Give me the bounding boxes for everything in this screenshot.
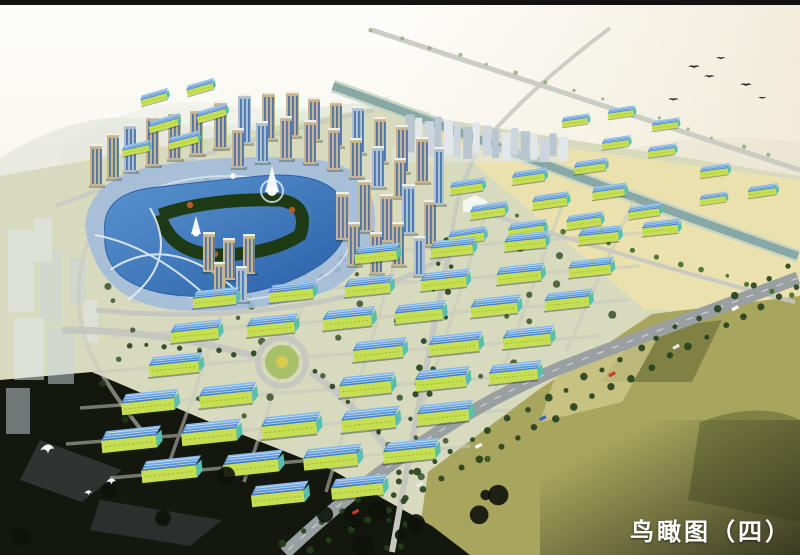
tree <box>698 267 704 273</box>
tower-glass <box>234 133 236 166</box>
tower-cap <box>348 222 360 224</box>
tower-glass <box>209 237 211 270</box>
island-tree <box>187 202 193 208</box>
tree <box>526 292 532 298</box>
tower-glass <box>253 239 255 272</box>
tower-glass <box>364 185 366 230</box>
distant-building <box>434 117 441 152</box>
tree <box>543 80 547 84</box>
tree-blob <box>217 467 235 485</box>
tree <box>769 289 774 294</box>
tower-glass <box>117 138 119 177</box>
tower-glass <box>296 96 298 135</box>
tower-cap <box>232 128 244 130</box>
tower-glass <box>346 197 348 238</box>
tower-cap <box>236 266 247 268</box>
tree-blob <box>368 501 387 520</box>
tower-glass <box>426 142 428 181</box>
tower-cap <box>396 125 408 127</box>
tower-cap <box>146 116 159 118</box>
tower-glass <box>100 149 102 184</box>
tower-glass <box>340 106 342 145</box>
tree <box>776 293 782 299</box>
tower-glass <box>382 151 384 186</box>
distant-building <box>482 126 491 156</box>
tree <box>346 400 350 404</box>
tree <box>757 303 764 310</box>
tree-blob <box>407 514 425 532</box>
island-tree <box>162 229 168 235</box>
tree <box>599 367 604 372</box>
plaza-monument <box>230 173 236 179</box>
island-tree <box>297 225 303 231</box>
tree <box>515 435 520 440</box>
tower-glass <box>382 199 384 240</box>
tower-cap <box>392 222 404 224</box>
tree-blob <box>470 505 489 524</box>
tower-glass <box>404 189 406 232</box>
faded-building <box>8 230 34 312</box>
tree <box>785 263 790 268</box>
island-tree <box>279 241 285 247</box>
tower-glass <box>242 133 244 166</box>
tower-glass <box>426 205 428 244</box>
tree <box>526 318 532 324</box>
tree <box>408 417 412 421</box>
tree-blob <box>101 482 117 498</box>
tree <box>438 475 444 481</box>
tree <box>459 464 465 470</box>
tower-glass <box>360 143 362 176</box>
tower-cap <box>262 92 275 94</box>
tower-glass <box>384 122 386 161</box>
faded-building <box>6 388 30 434</box>
tower-glass <box>258 126 260 161</box>
tower-cap <box>308 97 320 99</box>
tree <box>589 393 595 399</box>
tree <box>696 316 702 322</box>
faded-building <box>34 218 52 262</box>
tower-glass <box>416 241 418 274</box>
roundabout <box>258 338 306 386</box>
tree <box>710 136 713 139</box>
tower-glass <box>286 121 288 158</box>
tower-glass <box>360 185 362 230</box>
tree <box>458 53 462 57</box>
tree <box>476 456 484 464</box>
tower-glass <box>440 152 442 203</box>
tree <box>402 495 408 501</box>
tree <box>484 456 490 462</box>
tower-glass <box>422 142 424 181</box>
tower-glass <box>374 151 376 186</box>
tree <box>443 438 449 444</box>
tower-glass <box>406 130 408 171</box>
fountain-base <box>267 186 277 196</box>
tower-glass <box>266 126 268 161</box>
tree <box>177 346 182 351</box>
tower-cap <box>374 117 386 119</box>
tree <box>723 322 729 328</box>
distant-building <box>473 122 480 153</box>
island-tree <box>242 195 248 201</box>
tree <box>391 492 397 498</box>
tree <box>364 516 371 523</box>
tree <box>387 518 392 523</box>
distant-building <box>540 138 549 162</box>
tower-cap <box>124 124 136 126</box>
tree <box>396 470 401 475</box>
tower-glass <box>412 189 414 232</box>
tree <box>560 229 566 235</box>
tower-cap <box>286 91 299 93</box>
roundabout-flowerbed <box>276 356 288 368</box>
tree <box>278 540 286 548</box>
tree <box>556 252 563 259</box>
tower-glass <box>352 143 354 176</box>
tree <box>580 373 588 381</box>
tree <box>608 311 616 319</box>
tree <box>499 444 505 450</box>
tower-glass <box>314 125 316 162</box>
tree <box>672 324 677 329</box>
tower-glass <box>109 138 111 177</box>
tower-cap <box>358 180 371 182</box>
tower-glass <box>330 133 332 168</box>
tree <box>416 364 423 371</box>
tree <box>448 449 453 454</box>
tree <box>653 336 658 341</box>
tree <box>216 348 221 353</box>
tower-glass <box>338 197 340 238</box>
island-tree <box>167 212 173 218</box>
tree <box>726 274 730 278</box>
tower-glass <box>386 199 388 240</box>
tower-cap <box>352 106 364 108</box>
tower-glass <box>390 199 392 240</box>
tree <box>742 145 746 149</box>
tower-cap <box>214 262 225 264</box>
tree <box>368 28 372 32</box>
tower-cap <box>214 101 227 103</box>
tower-glass <box>400 163 402 196</box>
tree <box>667 352 673 358</box>
tree <box>478 374 483 379</box>
tree <box>413 435 418 440</box>
tower-glass <box>244 99 246 142</box>
tree <box>572 89 575 92</box>
tower-cap <box>238 94 251 96</box>
tree <box>564 388 569 393</box>
tower-cap <box>414 236 425 238</box>
tree <box>684 343 692 351</box>
distant-building <box>454 123 461 156</box>
tower-body <box>414 238 425 276</box>
tower-glass <box>356 143 358 176</box>
tower-glass <box>368 185 370 230</box>
tower-cap <box>90 144 102 146</box>
tower-glass <box>282 121 284 158</box>
tower-glass <box>306 125 308 162</box>
tower-cap <box>243 234 255 236</box>
tower-cap <box>350 138 362 140</box>
tree <box>654 255 659 260</box>
tree <box>307 546 314 553</box>
tree <box>421 338 427 344</box>
tower-glass <box>318 102 320 139</box>
tower-glass <box>249 239 251 272</box>
tree <box>638 345 645 352</box>
tree <box>398 543 404 549</box>
tree-blob <box>155 510 171 526</box>
tower-glass <box>434 205 436 244</box>
island-tree <box>182 243 188 249</box>
tree <box>630 248 635 253</box>
tower-glass <box>113 138 115 177</box>
tree <box>470 437 475 442</box>
faded-building <box>14 318 44 380</box>
tree <box>627 375 635 383</box>
tower-cap <box>336 192 349 194</box>
tower-glass <box>238 133 240 166</box>
tree <box>513 71 517 75</box>
fountain-base <box>193 230 200 237</box>
scene-svg <box>0 0 800 555</box>
tree <box>384 545 389 550</box>
tree <box>104 283 111 290</box>
tree <box>553 280 560 287</box>
tower-glass <box>350 227 352 264</box>
tree <box>766 153 770 157</box>
distant-building <box>550 133 557 156</box>
aerial-rendering: 鸟瞰图（四） <box>0 0 800 555</box>
island-tree <box>289 207 295 213</box>
tower-glass <box>96 149 98 184</box>
tree <box>418 473 425 480</box>
tree <box>130 327 135 332</box>
tree-blob <box>395 529 406 540</box>
tree <box>99 380 106 387</box>
tree <box>330 384 336 390</box>
tree <box>485 63 488 66</box>
tower-cap <box>223 238 235 240</box>
tower-glass <box>292 96 294 135</box>
tree <box>449 264 454 269</box>
tree <box>766 276 771 281</box>
tree <box>266 393 273 400</box>
tower-glass <box>92 149 94 184</box>
tree <box>116 357 122 363</box>
tree <box>607 383 614 390</box>
tower-glass <box>262 126 264 161</box>
tree <box>144 343 148 347</box>
tower-glass <box>408 189 410 232</box>
tree <box>617 357 623 363</box>
tree <box>525 407 531 413</box>
tree <box>236 316 240 320</box>
tower-cap <box>280 116 292 118</box>
tower-cap <box>416 137 428 139</box>
tree <box>704 335 709 340</box>
tower-glass <box>248 99 250 142</box>
tower-glass <box>430 205 432 244</box>
tree <box>231 352 236 357</box>
tree <box>111 298 116 303</box>
tower-glass <box>310 125 312 162</box>
tree-blob <box>488 485 508 505</box>
tower-cap <box>168 112 181 114</box>
tower-glass <box>362 111 364 152</box>
tower-cap <box>372 146 384 148</box>
tower-cap <box>402 184 415 186</box>
tree <box>570 403 578 411</box>
tower-glass <box>225 243 227 278</box>
tree <box>484 427 491 434</box>
tree-blob <box>12 527 31 546</box>
tower-cap <box>328 128 340 130</box>
tower-glass <box>205 237 207 270</box>
tower-glass <box>402 227 404 264</box>
tree <box>531 424 537 430</box>
tree <box>397 394 403 400</box>
tree-blob <box>317 506 333 522</box>
tower-cap <box>434 147 444 149</box>
distant-building <box>530 135 537 160</box>
tree <box>161 344 166 349</box>
tree <box>197 348 202 353</box>
tower-glass <box>418 142 420 181</box>
tree <box>601 97 604 100</box>
tree <box>658 116 661 119</box>
tree <box>335 335 341 341</box>
tree <box>714 305 721 312</box>
tree <box>751 282 757 288</box>
island-tree <box>212 197 218 203</box>
tree <box>320 373 326 379</box>
distant-building <box>511 128 518 155</box>
tree <box>127 343 133 349</box>
tree <box>504 415 510 421</box>
tree <box>301 528 306 533</box>
tower-glass <box>436 152 438 203</box>
tree <box>515 213 519 217</box>
tree <box>686 127 689 130</box>
tower-cap <box>380 194 393 196</box>
tower-glass <box>229 243 231 278</box>
tower-glass <box>396 163 398 196</box>
distant-building <box>492 129 499 158</box>
tower-glass <box>242 271 244 300</box>
tree <box>409 469 414 474</box>
tree <box>678 262 684 268</box>
tower-glass <box>338 133 340 168</box>
tree <box>326 538 332 544</box>
tower-glass <box>268 97 270 138</box>
tree <box>356 300 363 307</box>
tree <box>400 36 404 40</box>
distant-building <box>521 131 530 157</box>
tower-glass <box>334 133 336 168</box>
tree <box>794 284 800 290</box>
distant-building <box>463 127 472 159</box>
tree <box>545 394 553 402</box>
tower-cap <box>203 232 215 234</box>
tower-glass <box>342 197 344 238</box>
tree <box>420 486 427 493</box>
tower-body <box>434 149 444 205</box>
tree-blob <box>343 508 356 521</box>
tree <box>396 478 402 484</box>
tower-cap <box>107 133 119 135</box>
tower-cap <box>394 158 406 160</box>
tree <box>355 272 359 276</box>
tower-cap <box>370 232 382 234</box>
tree <box>436 262 440 266</box>
tree <box>428 46 432 50</box>
tree <box>552 415 559 422</box>
tree <box>731 292 739 300</box>
caption: 鸟瞰图（四） <box>630 512 792 547</box>
faded-building <box>48 328 74 384</box>
distant-building <box>502 132 511 160</box>
distant-building <box>559 137 568 159</box>
tree <box>740 313 747 320</box>
tree <box>648 364 655 371</box>
tower-glass <box>272 97 274 138</box>
tower-glass <box>378 151 380 186</box>
tower-cap <box>304 120 316 122</box>
tree <box>313 369 318 374</box>
tree <box>789 292 794 297</box>
tree <box>241 413 246 418</box>
tower-cap <box>330 101 342 103</box>
distant-building <box>444 120 453 154</box>
tower-glass <box>290 121 292 158</box>
tower-glass <box>233 243 235 278</box>
tower-cap <box>256 121 268 123</box>
tree <box>744 282 749 287</box>
top-frame-bar <box>0 0 800 5</box>
tower-glass <box>420 241 422 274</box>
